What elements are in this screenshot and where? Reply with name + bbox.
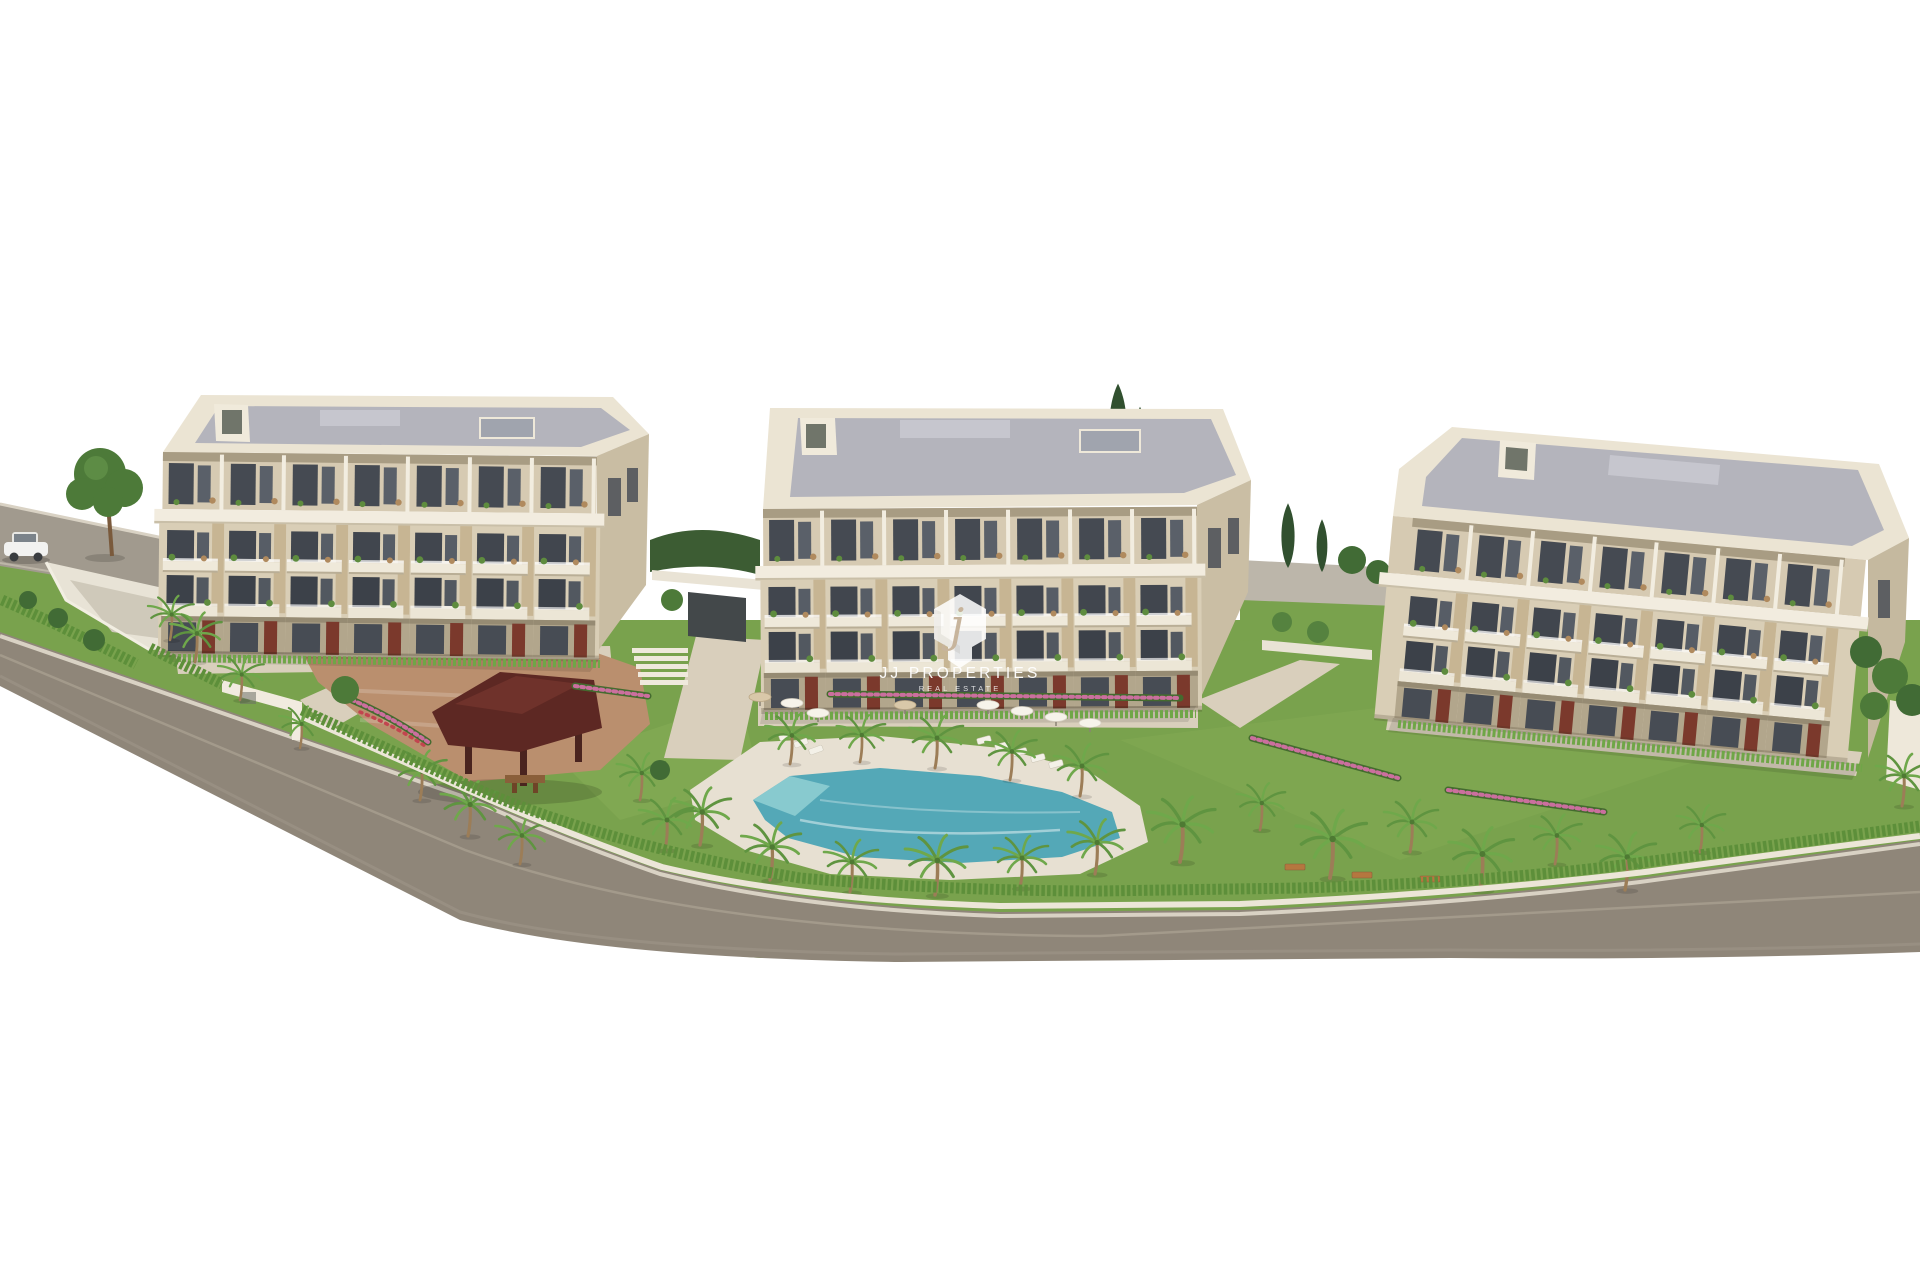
render-canvas: j JJ PROPERTIES REAL ESTATE — [0, 0, 1920, 1280]
garden-tree — [331, 676, 359, 704]
watermark-tagline: REAL ESTATE — [919, 684, 1001, 693]
roof — [163, 395, 649, 456]
facade — [153, 452, 605, 662]
roof — [763, 408, 1251, 509]
architectural-render: j JJ PROPERTIES REAL ESTATE — [0, 0, 1920, 1280]
right-building — [1366, 427, 1909, 765]
watermark-brand: JJ PROPERTIES — [879, 665, 1040, 682]
left-building — [153, 395, 649, 662]
garden-tree — [650, 760, 670, 780]
